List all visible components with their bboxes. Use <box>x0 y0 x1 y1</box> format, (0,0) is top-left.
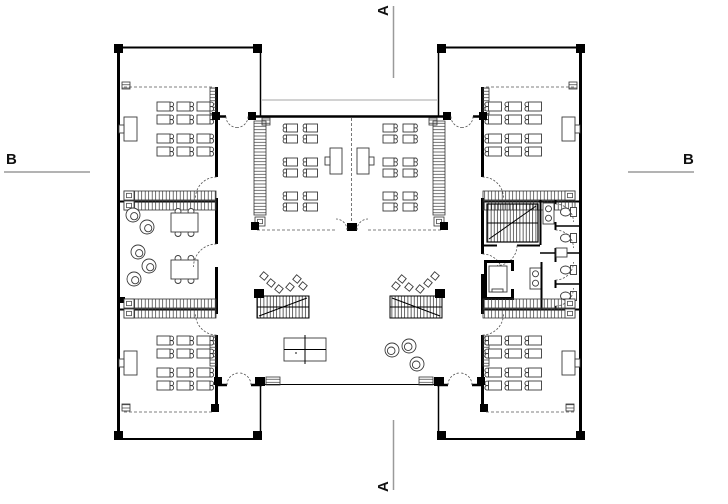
entry-door-arc <box>448 373 460 385</box>
desk-cluster <box>403 192 417 211</box>
desk-cluster <box>283 192 297 211</box>
floor-plan-page: A A B B <box>0 0 728 504</box>
cabinet-box <box>565 309 575 318</box>
central-classroom-left <box>283 124 342 211</box>
desk-cluster <box>177 134 194 156</box>
cabinet-box <box>124 309 134 318</box>
cabinet-box <box>565 191 575 200</box>
cabinet-strip <box>124 201 216 210</box>
desk-cluster <box>525 134 542 156</box>
section-marker-a-top: A <box>375 5 394 78</box>
desk-cluster <box>303 124 317 143</box>
pouf <box>410 357 424 371</box>
cabinet-strip <box>483 299 575 308</box>
meeting-room <box>118 201 217 308</box>
desk-cluster <box>177 102 194 124</box>
staircase-core <box>487 204 538 242</box>
desk-cluster <box>197 368 214 390</box>
pouf <box>402 339 416 353</box>
elevator <box>484 260 514 300</box>
door-arc <box>336 219 347 230</box>
stair-down-right <box>390 289 445 318</box>
floor-cushions-left <box>260 272 307 293</box>
desk-cluster <box>157 102 174 124</box>
desk-cluster <box>403 158 417 177</box>
elevator-car <box>489 266 507 292</box>
desk-cluster <box>485 368 502 390</box>
door-arc <box>357 219 368 230</box>
teacher-desk <box>119 351 137 375</box>
desk-cluster <box>525 336 542 358</box>
vent-grille <box>419 377 433 385</box>
sink-unit <box>543 203 554 224</box>
cabinet-strip <box>483 309 575 318</box>
lounge-chair <box>127 272 141 286</box>
table-tennis-table <box>284 335 326 364</box>
desk-cluster <box>505 102 522 124</box>
vent-grille <box>122 404 130 411</box>
shelf-unit <box>254 121 266 215</box>
lounge-chair <box>140 220 154 234</box>
section-marker-a-bottom: A <box>375 420 394 492</box>
entry-door-arc <box>239 373 251 385</box>
central-block <box>212 100 487 231</box>
desk-cluster <box>157 134 174 156</box>
desk-cluster <box>383 192 397 211</box>
section-label-a-top: A <box>375 5 392 16</box>
desk-cluster <box>177 336 194 358</box>
desk-cluster <box>383 124 397 143</box>
utility-sink <box>556 248 567 257</box>
cabinet-strip <box>483 191 575 200</box>
wc-toilet <box>561 266 577 275</box>
classroom-top-left <box>119 82 217 200</box>
desk-cluster <box>157 368 174 390</box>
section-marker-b-right: B <box>628 151 694 172</box>
desk-cluster <box>525 368 542 390</box>
teacher-desk <box>119 117 137 141</box>
cabinet-strip <box>124 299 216 308</box>
hall-south-wall <box>214 373 485 386</box>
wc-toilet <box>561 208 577 217</box>
stair-down-left <box>254 289 309 318</box>
lounge-chair <box>142 259 156 273</box>
vent-grille <box>266 377 280 385</box>
desk-cluster <box>303 192 317 211</box>
teacher-desk <box>562 351 580 375</box>
entry-door-arc <box>462 117 473 128</box>
entry-door-arc <box>237 117 248 128</box>
teacher-desk <box>562 117 580 141</box>
section-label-b-right: B <box>683 151 694 168</box>
lounge-chair <box>126 208 140 222</box>
desk-cluster <box>177 368 194 390</box>
section-label-a-bottom: A <box>375 481 392 492</box>
cabinet-box <box>124 191 134 200</box>
lounge-chair <box>131 245 145 259</box>
desk-cluster <box>383 158 397 177</box>
cabinet-strip <box>124 191 216 200</box>
entry-door-arc <box>226 117 237 128</box>
right-wing <box>437 44 585 440</box>
desk-cluster <box>303 158 317 177</box>
desk-cluster <box>505 368 522 390</box>
wc-toilet <box>561 234 577 243</box>
central-hall <box>214 272 485 386</box>
classroom-bottom-left <box>119 309 219 412</box>
desk-cluster <box>403 124 417 143</box>
vent-grille <box>122 82 130 89</box>
desk-cluster <box>505 336 522 358</box>
entry-door-arc <box>451 117 462 128</box>
vent-grille <box>569 82 577 89</box>
teacher-desk <box>357 148 374 174</box>
vent-grille <box>566 404 574 411</box>
cabinet-box <box>565 299 575 308</box>
classroom-top-right <box>483 82 581 200</box>
classroom-bottom-right <box>480 299 580 412</box>
central-classroom-right <box>357 124 417 211</box>
shelf-unit <box>433 121 445 215</box>
desk-cluster <box>485 134 502 156</box>
entry-door-arc <box>227 373 239 385</box>
teacher-desk <box>325 148 342 174</box>
floor-plan-canvas: A A B B <box>0 0 728 504</box>
pouf <box>385 343 399 357</box>
poufs <box>385 339 424 371</box>
desk-cluster <box>157 336 174 358</box>
section-markers: A A B B <box>4 5 694 492</box>
meeting-table <box>171 209 198 237</box>
entry-door-arc <box>460 373 472 385</box>
floor-cushions-right <box>392 272 439 293</box>
desk-cluster <box>283 124 297 143</box>
section-marker-b-left: B <box>4 151 90 172</box>
desk-cluster <box>505 134 522 156</box>
desk-cluster <box>283 158 297 177</box>
cabinet-box <box>124 299 134 308</box>
meeting-table <box>171 256 198 284</box>
desk-cluster <box>525 102 542 124</box>
service-core <box>482 200 580 310</box>
cabinet-strip <box>124 309 216 318</box>
desk-cluster <box>197 134 214 156</box>
left-wing <box>114 44 262 440</box>
sink-unit <box>530 268 541 289</box>
section-label-b-left: B <box>6 151 17 168</box>
